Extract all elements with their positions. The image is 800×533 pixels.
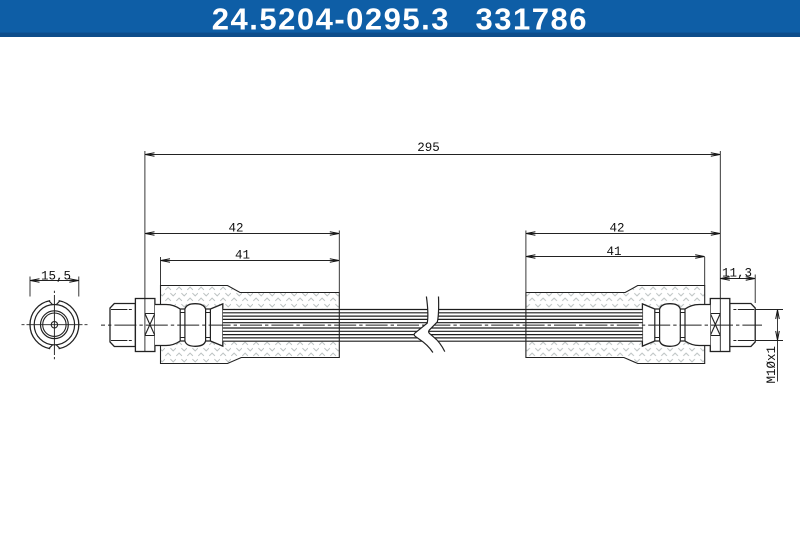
svg-text:42: 42: [228, 221, 243, 235]
svg-text:41: 41: [235, 249, 250, 263]
svg-text:41: 41: [606, 245, 621, 259]
svg-text:42: 42: [609, 221, 624, 235]
svg-text:11,3: 11,3: [722, 266, 752, 280]
svg-text:295: 295: [417, 141, 440, 155]
svg-text:24.5204-0295.3: 24.5204-0295.3: [212, 1, 450, 36]
svg-text:M1Øx1: M1Øx1: [765, 346, 779, 384]
svg-text:331786: 331786: [476, 1, 588, 36]
svg-text:15,5: 15,5: [41, 269, 71, 283]
